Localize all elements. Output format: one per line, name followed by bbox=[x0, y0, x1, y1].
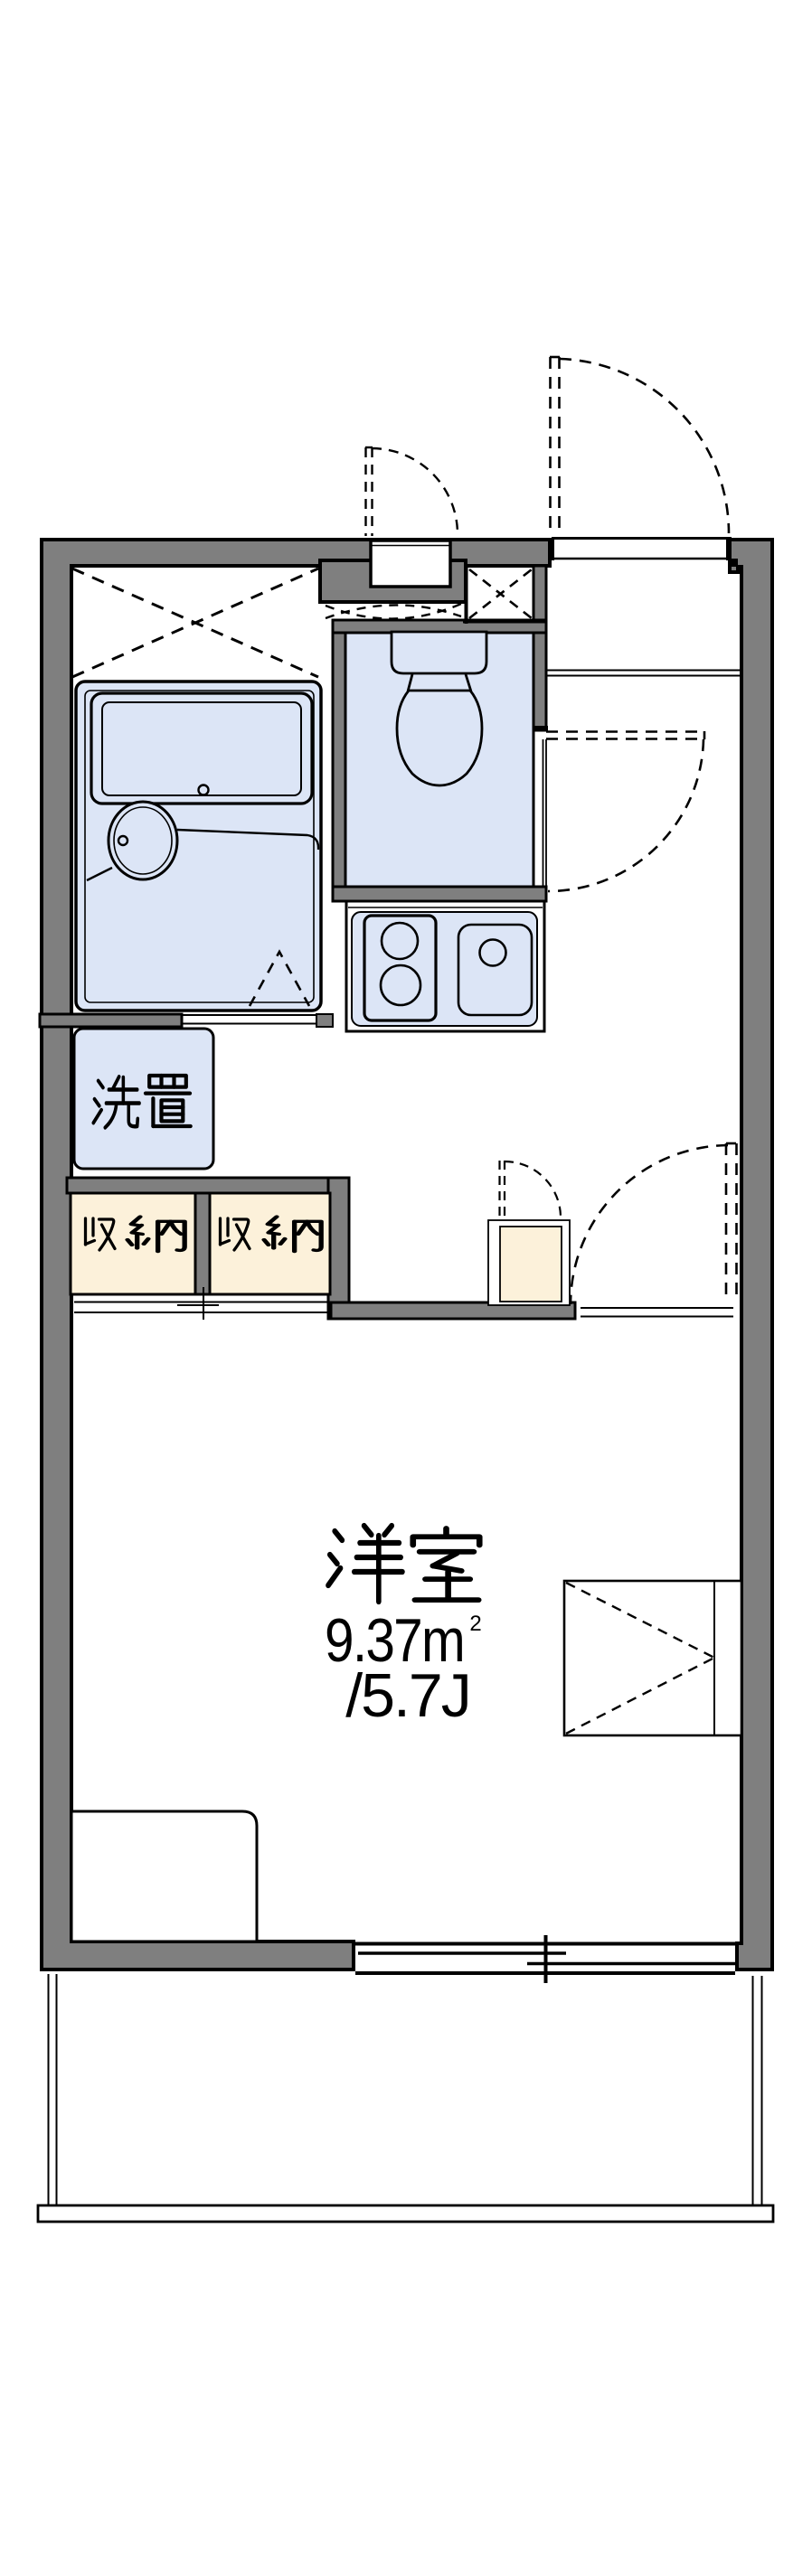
svg-text:2: 2 bbox=[469, 1612, 481, 1636]
svg-text:/5.7J: /5.7J bbox=[345, 1661, 469, 1730]
